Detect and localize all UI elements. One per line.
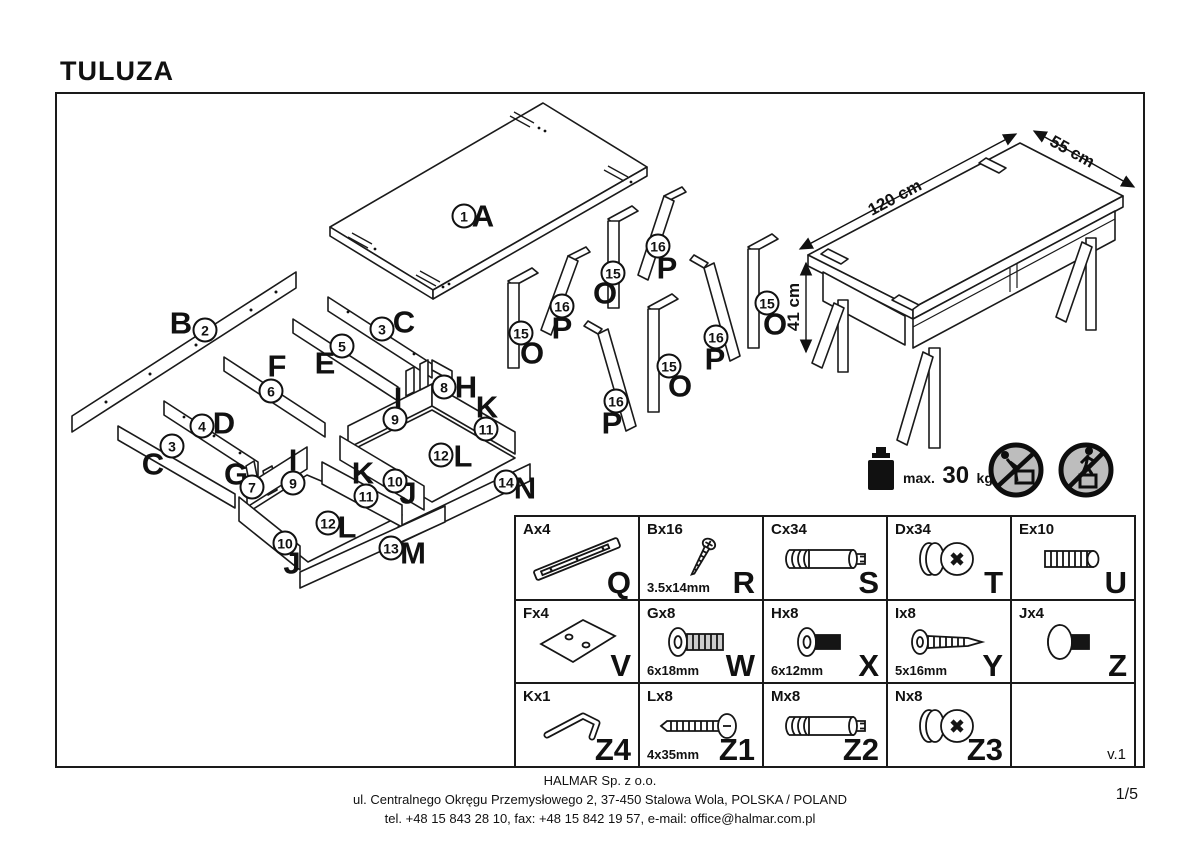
parts-table: Ax4 QBx16 3.5x14mmRCx34 SDx34 TEx10 UFx4… bbox=[514, 515, 1136, 768]
assembled-view bbox=[800, 131, 1134, 448]
parts-cell-Fx4: Fx4 V bbox=[515, 600, 639, 684]
part-ref: V bbox=[610, 648, 631, 683]
dimension-height: 41 cm bbox=[784, 283, 804, 331]
version-note: v.1 bbox=[1107, 746, 1126, 763]
parts-cell-Ix8: Ix8 5x16mmY bbox=[887, 600, 1011, 684]
part-ref: Z bbox=[1108, 648, 1127, 683]
part-ref: W bbox=[726, 648, 755, 683]
page-number: 1/5 bbox=[1116, 786, 1138, 804]
parts-cell-Bx16: Bx16 3.5x14mmR bbox=[639, 516, 763, 600]
part-ref: X bbox=[858, 648, 879, 683]
parts-cell-Mx8: Mx8 Z2 bbox=[763, 683, 887, 767]
company-address: ul. Centralnego Okręgu Przemysłowego 2, … bbox=[55, 791, 1145, 810]
load-limit-label: max. bbox=[903, 470, 935, 486]
part-ref: Z3 bbox=[967, 732, 1003, 767]
part-ref: U bbox=[1105, 565, 1127, 600]
part-ref: Z4 bbox=[595, 732, 631, 767]
company-contact: tel. +48 15 843 28 10, fax: +48 15 842 1… bbox=[55, 810, 1145, 829]
company-name: HALMAR Sp. z o.o. bbox=[55, 772, 1145, 791]
part-size: 3.5x14mm bbox=[647, 580, 710, 595]
parts-cell-empty: v.1 bbox=[1011, 683, 1135, 767]
part-size: 4x35mm bbox=[647, 747, 699, 762]
parts-cell-Ax4: Ax4 Q bbox=[515, 516, 639, 600]
parts-cell-Dx34: Dx34 T bbox=[887, 516, 1011, 600]
part-ref: Z1 bbox=[719, 732, 755, 767]
load-limit: max. 30 kg bbox=[903, 462, 993, 490]
part-size: 5x16mm bbox=[895, 663, 947, 678]
no-pushing-icon bbox=[991, 445, 1041, 495]
parts-cell-Gx8: Gx8 6x18mmW bbox=[639, 600, 763, 684]
part-ref: Y bbox=[982, 648, 1003, 683]
part-size: 6x18mm bbox=[647, 663, 699, 678]
assembly-instruction-page: { "title": "TULUZA", "version": "v.1", "… bbox=[0, 0, 1200, 848]
part-ref: Z2 bbox=[843, 732, 879, 767]
parts-cell-Cx34: Cx34 S bbox=[763, 516, 887, 600]
weight-icon bbox=[868, 447, 894, 490]
part-ref: S bbox=[858, 565, 879, 600]
parts-cell-Jx4: Jx4 Z bbox=[1011, 600, 1135, 684]
part-ref: T bbox=[984, 565, 1003, 600]
part-ref: R bbox=[733, 565, 755, 600]
parts-cell-Hx8: Hx8 6x12mmX bbox=[763, 600, 887, 684]
parts-cell-Nx8: Nx8 Z3 bbox=[887, 683, 1011, 767]
load-limit-value: 30 bbox=[942, 462, 969, 489]
parts-cell-Kx1: Kx1 Z4 bbox=[515, 683, 639, 767]
no-standing-icon bbox=[1061, 445, 1111, 495]
footer: HALMAR Sp. z o.o. ul. Centralnego Okręgu… bbox=[55, 772, 1145, 829]
load-limit-unit: kg bbox=[977, 470, 993, 486]
parts-cell-Lx8: Lx8 4x35mmZ1 bbox=[639, 683, 763, 767]
part-ref: Q bbox=[607, 565, 631, 600]
parts-cell-Ex10: Ex10 U bbox=[1011, 516, 1135, 600]
part-size: 6x12mm bbox=[771, 663, 823, 678]
